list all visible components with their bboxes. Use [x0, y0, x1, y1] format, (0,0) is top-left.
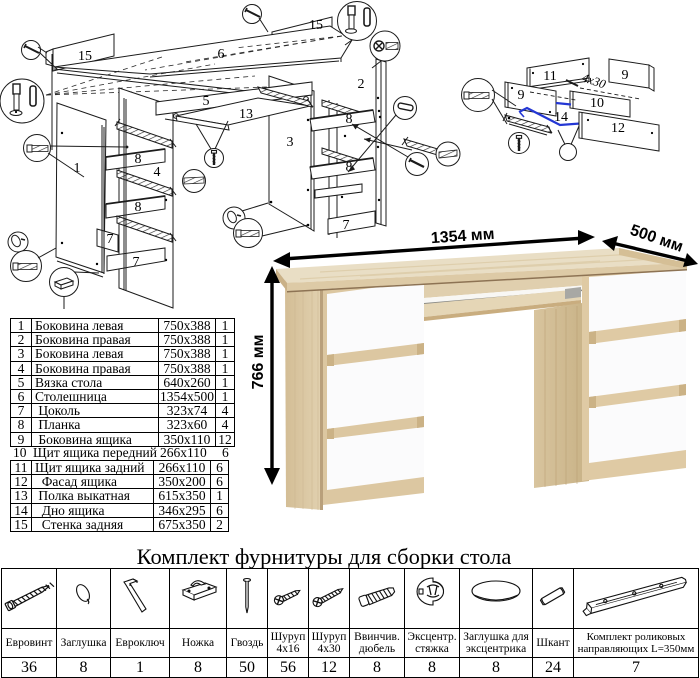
svg-text:8: 8	[346, 112, 353, 127]
svg-text:15: 15	[78, 49, 92, 64]
svg-text:7: 7	[133, 255, 140, 270]
svg-text:12: 12	[611, 121, 625, 136]
svg-text:14: 14	[554, 110, 568, 125]
svg-text:4х30: 4х30	[580, 71, 608, 92]
svg-text:4: 4	[154, 165, 161, 180]
svg-text:2: 2	[358, 77, 365, 92]
svg-text:8: 8	[135, 200, 142, 215]
svg-text:8: 8	[135, 152, 142, 167]
svg-text:766 мм: 766 мм	[250, 335, 267, 390]
svg-text:13: 13	[239, 107, 253, 122]
svg-text:6: 6	[218, 47, 225, 62]
svg-text:9: 9	[518, 88, 525, 103]
svg-text:500 мм: 500 мм	[628, 222, 685, 256]
svg-text:10: 10	[590, 96, 604, 111]
svg-text:7: 7	[107, 232, 114, 247]
svg-text:9: 9	[622, 68, 629, 83]
svg-text:7: 7	[343, 218, 350, 233]
svg-text:5: 5	[203, 94, 210, 109]
svg-text:15: 15	[309, 18, 323, 33]
svg-text:3: 3	[287, 135, 294, 150]
svg-text:11: 11	[543, 69, 556, 84]
